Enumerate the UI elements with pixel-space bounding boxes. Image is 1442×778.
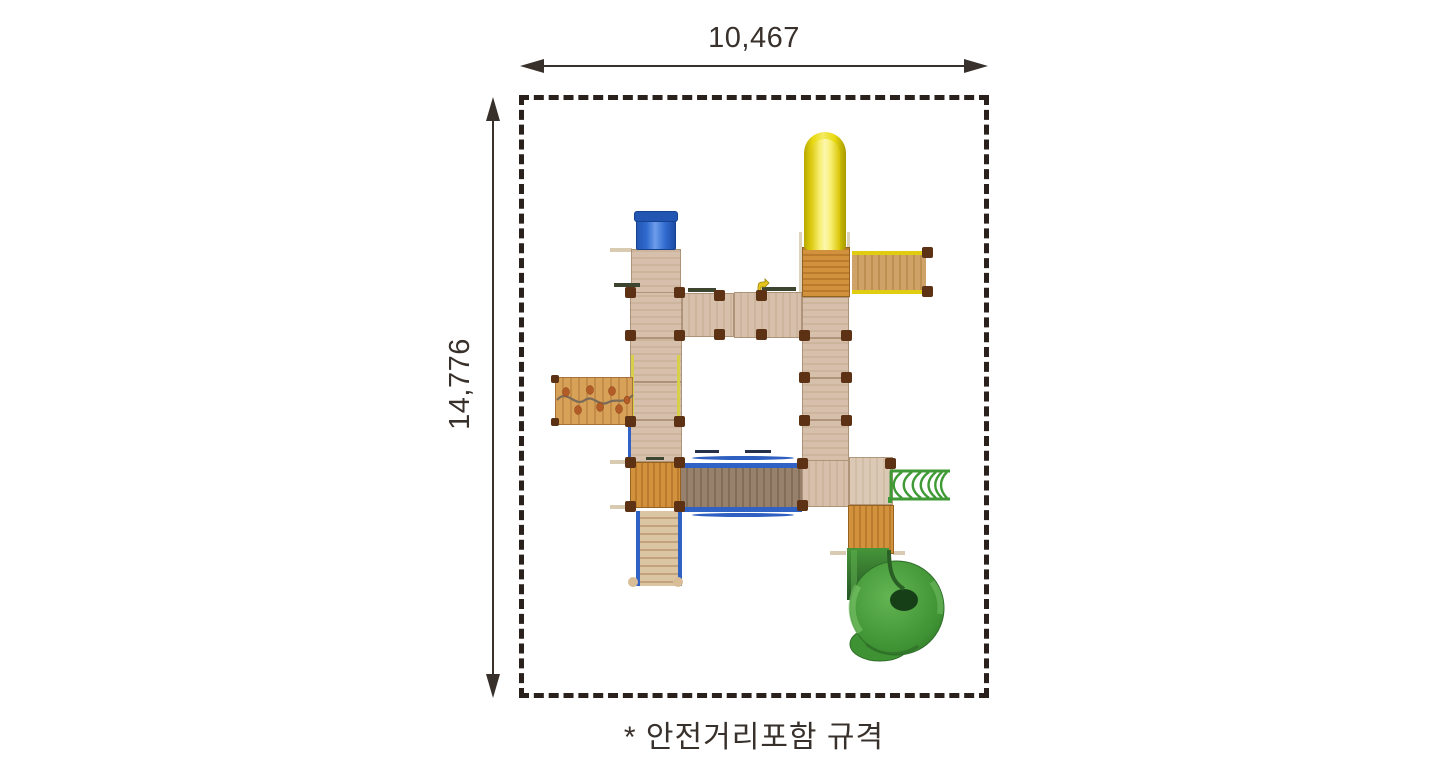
post [674, 287, 685, 298]
slide-channel [810, 139, 840, 250]
platform [802, 460, 849, 507]
support-stub [610, 248, 632, 252]
bridge-handrail [692, 513, 794, 517]
stair-foot [628, 577, 638, 587]
post [799, 372, 810, 383]
post [756, 329, 767, 340]
green-spiral-tube-slide [840, 548, 948, 662]
height-dimension-label: 14,776 [444, 319, 476, 449]
post [799, 415, 810, 426]
yellow-tube-slide [804, 132, 846, 250]
post [674, 457, 685, 468]
post [885, 458, 896, 469]
post [922, 286, 933, 297]
platform [682, 293, 734, 337]
panel-edge [688, 288, 716, 292]
post [922, 247, 933, 258]
climbing-wall [555, 377, 633, 425]
arrow-left-icon [520, 59, 544, 73]
platform [630, 338, 682, 382]
stair-foot [673, 577, 683, 587]
platform [802, 378, 849, 420]
arrow-right-icon [964, 59, 988, 73]
arrow-up-icon [486, 97, 500, 121]
arrow-down-icon [486, 674, 500, 698]
green-arch-ladder [888, 467, 952, 503]
climbing-wall-holds [556, 378, 634, 426]
panel-edge [695, 450, 719, 453]
platform [630, 382, 682, 420]
platform [734, 292, 802, 338]
panel-edge [646, 457, 664, 460]
post [551, 375, 559, 383]
post [841, 415, 852, 426]
post [625, 457, 636, 468]
orange-deck [802, 247, 850, 297]
width-dimension-label: 10,467 [519, 22, 989, 55]
yellow-rail-bridge [852, 251, 926, 294]
post [625, 287, 636, 298]
footnote-caption: * 안전거리포함 규격 [519, 712, 989, 756]
panel-edge [745, 450, 771, 453]
post [714, 290, 725, 301]
post [756, 290, 767, 301]
post [714, 329, 725, 340]
height-dimension-line [492, 116, 494, 676]
post [551, 418, 559, 426]
orange-deck [848, 505, 894, 554]
post [799, 330, 810, 341]
blue-box-climber [636, 212, 676, 250]
rope-suspension-bridge [681, 463, 802, 512]
width-dimension-line [540, 65, 966, 67]
post [625, 416, 636, 427]
post [674, 330, 685, 341]
drawing-canvas: 10,467 14,776 [0, 0, 1442, 778]
post [625, 501, 636, 512]
wall-strip [677, 355, 680, 417]
post [625, 330, 636, 341]
bridge-handrail [692, 456, 794, 460]
platform [802, 420, 849, 462]
post [841, 372, 852, 383]
post [841, 330, 852, 341]
post [674, 416, 685, 427]
post [797, 458, 808, 469]
post [797, 500, 808, 511]
stairway [636, 511, 682, 586]
post [674, 501, 685, 512]
